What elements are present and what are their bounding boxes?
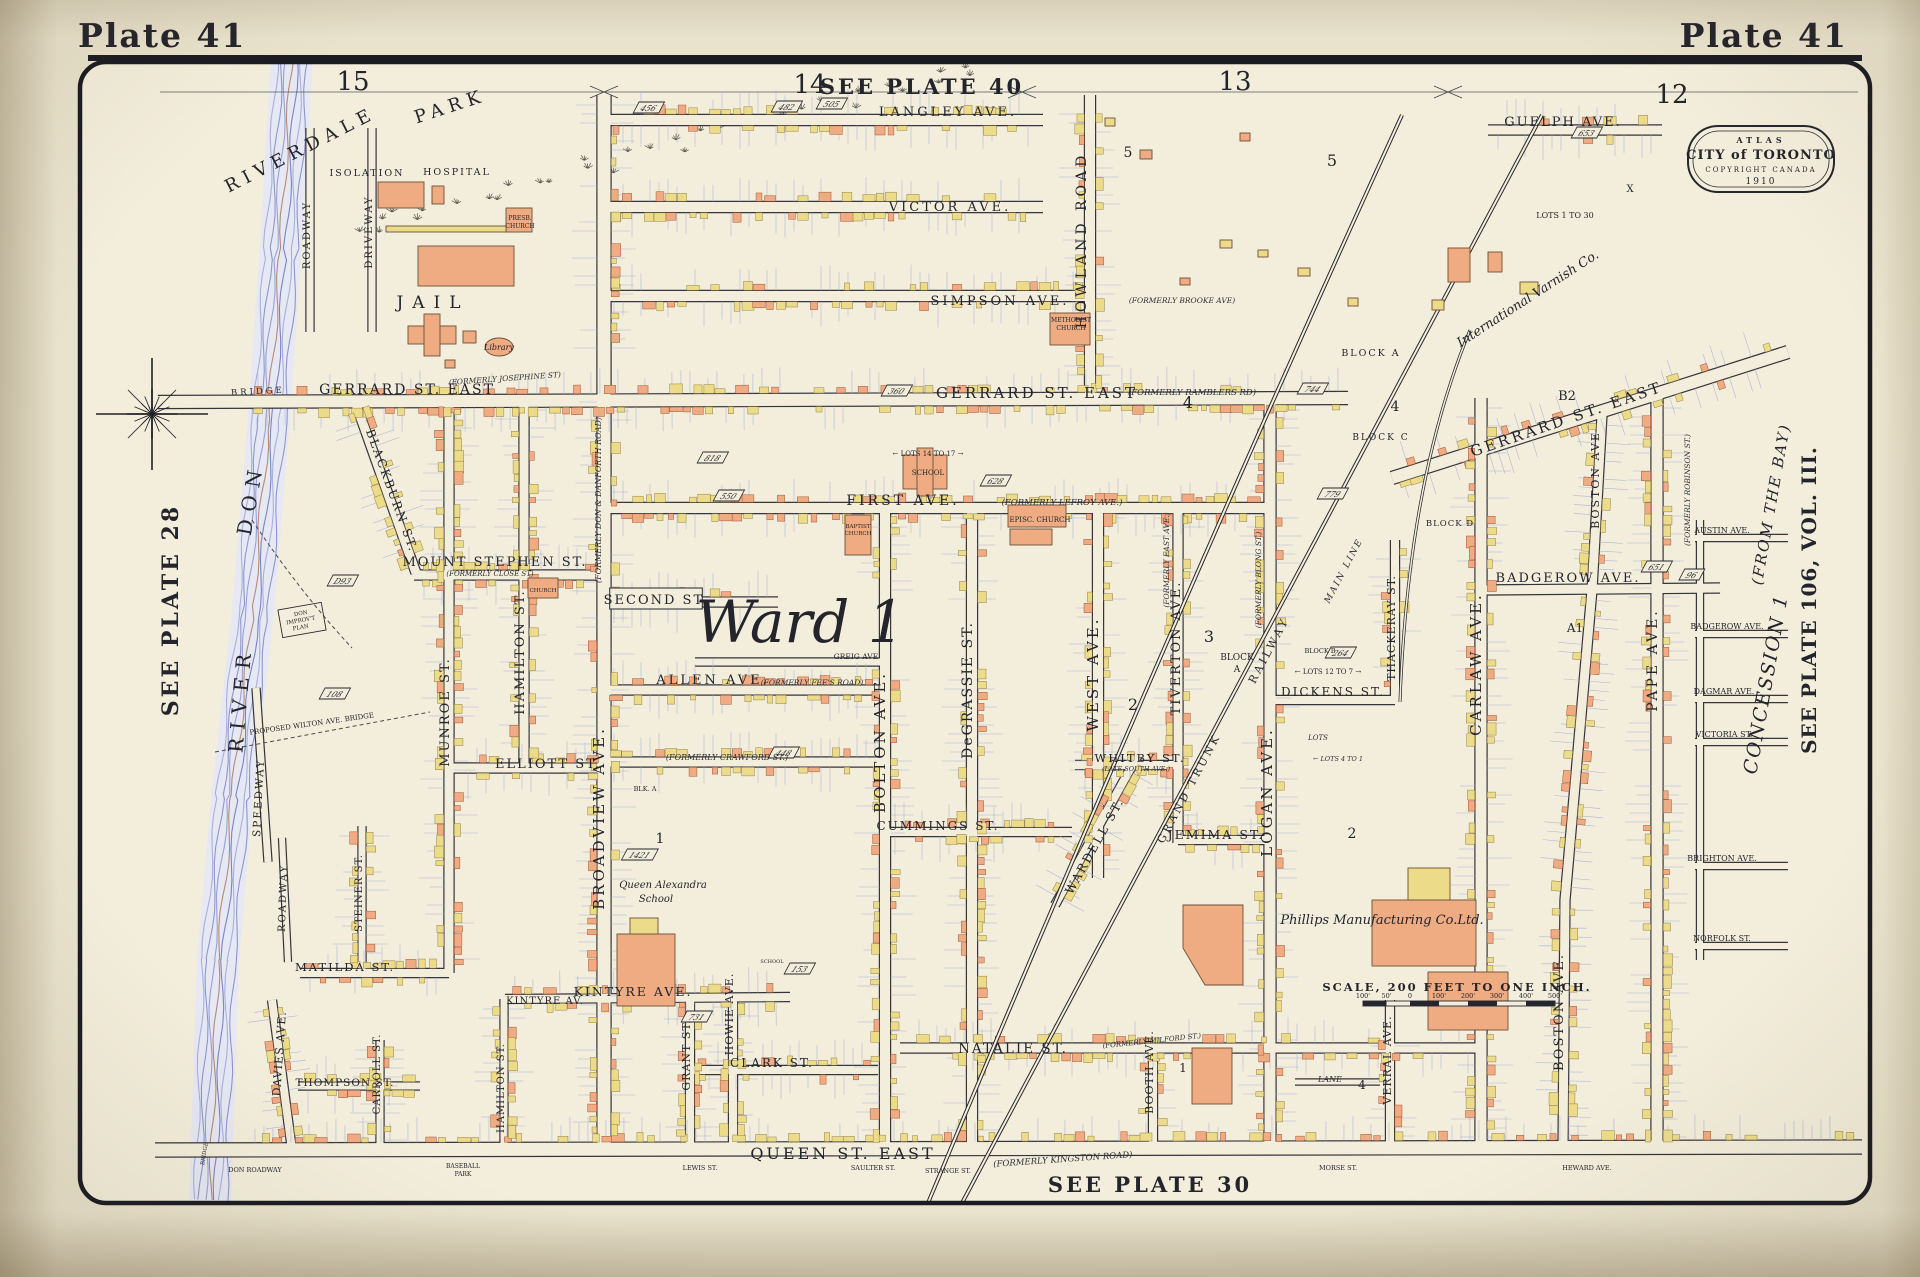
map-label-school: School bbox=[639, 894, 673, 905]
street-queen-st-east bbox=[155, 1147, 1862, 1150]
see-plate-30-label: SEE PLATE 30 bbox=[1048, 1172, 1252, 1197]
map-label-3: 3 bbox=[1204, 627, 1214, 646]
landmark-building bbox=[386, 226, 518, 232]
map-label-dagmar-ave: DAGMAR AVE. bbox=[1694, 687, 1755, 696]
map-label-13: 13 bbox=[1218, 67, 1251, 97]
scale-tick-2: 0 bbox=[1408, 992, 1412, 1000]
map-label-kintyre-av: KINTYRE AV. bbox=[506, 996, 584, 1007]
map-label-don-roadway: DON ROADWAY bbox=[228, 1166, 282, 1174]
map-label-simpson-ave: SIMPSON AVE. bbox=[931, 294, 1070, 309]
map-label-lewis-st: LEWIS ST. bbox=[683, 1164, 718, 1172]
map-label-pape-ave: PAPE AVE. bbox=[1645, 608, 1661, 712]
scale-tick-0: 100' bbox=[1356, 992, 1370, 1000]
map-label-greig-ave: GREIG AVE bbox=[834, 652, 878, 661]
landmark-building bbox=[630, 918, 658, 934]
crest-year: 1910 bbox=[1746, 177, 1777, 187]
map-label-elliott-st: ELLIOTT ST. bbox=[495, 757, 601, 772]
map-label-badgerow-ave: BADGEROW AVE. bbox=[1690, 622, 1763, 631]
map-label-block-d: BLOCK D bbox=[1426, 519, 1474, 529]
map-label-driveway: DRIVEWAY bbox=[364, 195, 375, 268]
map-label-carlaw-ave: CARLAW AVE. bbox=[1467, 592, 1485, 736]
map-label-15: 15 bbox=[336, 67, 369, 97]
map-label-ward-1: Ward 1 bbox=[695, 588, 904, 656]
map-label-kintyre-ave: KINTYRE AVE. bbox=[574, 984, 693, 999]
map-label-strange-st: STRANGE ST. bbox=[925, 1167, 971, 1175]
landmark-building bbox=[424, 314, 440, 356]
map-label-jemima-st: JEMIMA ST. bbox=[1166, 827, 1265, 842]
map-label-formerly-robinson-st: (FORMERLY ROBINSON ST.) bbox=[1683, 434, 1692, 546]
map-label-austin-ave: AUSTIN AVE. bbox=[1693, 526, 1750, 535]
landmark-building bbox=[1180, 278, 1190, 285]
map-label-4: 4 bbox=[1391, 399, 1400, 415]
landmark-building bbox=[1192, 1048, 1232, 1104]
map-label-hamilton-st: HAMILTON ST. bbox=[513, 589, 528, 714]
map-label-first-ave: FIRST AVE. bbox=[846, 493, 959, 509]
map-label-1: 1 bbox=[656, 831, 665, 847]
map-label-langley-ave: LANGLEY AVE. bbox=[879, 105, 1017, 120]
map-label-presb: PRESB. bbox=[508, 215, 531, 222]
landmark-building bbox=[432, 186, 444, 204]
atlas-plate-41-map: 45648250565336055081862874477965196448D9… bbox=[0, 0, 1920, 1277]
map-label-school: SCHOOL bbox=[912, 469, 945, 477]
map-label-formerly-lefroy-ave: (FORMERLY LEFROY AVE.) bbox=[1002, 497, 1123, 508]
map-label-formerly-blong-st: (FORMERLY BLONG ST.) bbox=[1254, 532, 1263, 629]
landmark-building bbox=[1408, 868, 1450, 900]
map-label-formerly-fee-s-road: (FORMERLY FEE'S ROAD) bbox=[761, 678, 864, 687]
map-label-verral-ave: VERRAL AVE. bbox=[1381, 1015, 1394, 1105]
map-label-b2: B2 bbox=[1558, 389, 1576, 404]
landmark-building bbox=[1140, 150, 1152, 159]
map-label-tiverton-ave: TIVERTON AVE. bbox=[1169, 581, 1184, 716]
map-label-west-ave: WEST AVE. bbox=[1084, 616, 1102, 731]
landmark-building bbox=[1220, 240, 1232, 248]
map-label-boston-ave: BOSTON AVE bbox=[1589, 431, 1602, 529]
map-label-formerly-crawford-st: (FORMERLY CRAWFORD ST.) bbox=[666, 753, 788, 762]
landmark-building bbox=[445, 360, 455, 368]
map-label-formerly-don-danforth-road: (FORMERLY DON & DANFORTH ROAD) bbox=[594, 417, 603, 583]
map-label-natalie-st: NATALIE ST. bbox=[958, 1041, 1068, 1057]
map-label-whitby-st: WHITBY ST. bbox=[1094, 751, 1185, 765]
map-label-x: X bbox=[1626, 184, 1634, 195]
map-label-brighton-ave: BRIGHTON AVE. bbox=[1687, 854, 1756, 863]
map-label-lots-4-to-1: ← LOTS 4 TO 1 bbox=[1313, 755, 1363, 763]
map-label-a1: A1 bbox=[1566, 621, 1583, 635]
map-label-gerrard-st-east: GERRARD ST. EAST bbox=[936, 384, 1138, 402]
map-label-12: 12 bbox=[1655, 80, 1688, 110]
map-label-norfolk-st: NORFOLK ST. bbox=[1693, 934, 1751, 943]
landmark-building bbox=[1105, 118, 1115, 126]
map-label-hospital: HOSPITAL bbox=[423, 167, 491, 178]
map-label-2: 2 bbox=[1348, 826, 1357, 842]
landmark-building bbox=[1010, 529, 1052, 545]
landmark-building bbox=[1258, 250, 1268, 257]
landmark-building bbox=[418, 246, 514, 286]
landmark-building bbox=[378, 182, 424, 208]
map-label-boston-ave: BOSTON AVE. bbox=[1552, 953, 1567, 1071]
map-label-carroll-st: CARROLL ST. bbox=[372, 1034, 383, 1115]
map-label-howland-road: HOWLAND ROAD bbox=[1074, 152, 1090, 329]
map-label-5: 5 bbox=[1124, 145, 1133, 161]
map-label-cummings-st: CUMMINGS ST. bbox=[876, 819, 999, 833]
map-label-guelph-ave: GUELPH AVE. bbox=[1504, 115, 1621, 130]
map-label-grant-st: GRANT ST. bbox=[680, 1019, 693, 1090]
map-label-episc-church: EPISC. CHURCH bbox=[1009, 516, 1070, 524]
map-label-4: 4 bbox=[1183, 393, 1193, 412]
scale-seg bbox=[1468, 1001, 1497, 1006]
map-label-heward-ave: HEWARD AVE. bbox=[1562, 1164, 1612, 1172]
scale-tick-4: 200' bbox=[1461, 992, 1475, 1000]
map-label-1: 1 bbox=[1179, 1061, 1187, 1075]
map-label-allen-ave: ALLEN AVE. bbox=[655, 673, 769, 688]
map-label-roadway: ROADWAY bbox=[302, 201, 313, 269]
map-label-see-plate-106-vol-iii: SEE PLATE 106, VOL. III. bbox=[1797, 446, 1821, 754]
map-label-block-c: BLOCK C bbox=[1352, 433, 1409, 443]
map-label-church: CHURCH bbox=[530, 588, 557, 594]
map-label-phillips-manufacturing-co-ltd: Phillips Manufacturing Co.Ltd. bbox=[1279, 913, 1483, 928]
scale-tick-1: 50' bbox=[1381, 992, 1391, 1000]
see-plate-40-label: SEE PLATE 40 bbox=[820, 74, 1024, 99]
map-label-victor-ave: VICTOR AVE. bbox=[888, 200, 1011, 215]
map-label-saulter-st: SAULTER ST. bbox=[851, 1164, 895, 1172]
map-label-steiner-st: STEINER ST. bbox=[354, 854, 365, 932]
plate-title-right: Plate 41 bbox=[1680, 16, 1848, 55]
scale-tick-7: 500' bbox=[1548, 992, 1562, 1000]
crest-city: CITY of TORONTO bbox=[1686, 148, 1836, 163]
plate-title-left: Plate 41 bbox=[78, 16, 246, 55]
landmark-building bbox=[1488, 252, 1502, 272]
map-label-broadview-ave: BROADVIEW AVE. bbox=[590, 726, 608, 910]
street-badgerow-ave bbox=[1481, 588, 1720, 590]
map-label-5: 5 bbox=[1327, 151, 1337, 170]
scale-seg bbox=[1526, 1001, 1555, 1006]
map-label-formerly-brooke-ave: (FORMERLY BROOKE AVE) bbox=[1129, 296, 1235, 305]
map-label-queen-alexandra: Queen Alexandra bbox=[619, 880, 707, 891]
map-label-a: A bbox=[1233, 665, 1241, 675]
map-label-church: CHURCH bbox=[505, 223, 534, 230]
map-label-lots-12-to-7: ← LOTS 12 TO 7 → bbox=[1295, 668, 1362, 676]
map-label-formerly-close-st: (FORMERLY CLOSE ST) bbox=[446, 570, 534, 578]
map-label-munroe-st: MUNROE ST. bbox=[438, 657, 453, 767]
map-label-hamilton-st: HAMILTON ST. bbox=[496, 1043, 507, 1133]
map-label-degrassie-st: DeGRASSIE ST. bbox=[960, 621, 976, 759]
map-label-lots-1-to-30: LOTS 1 TO 30 bbox=[1536, 211, 1593, 220]
map-label-park: PARK bbox=[455, 1171, 472, 1178]
scale-tick-5: 300' bbox=[1490, 992, 1504, 1000]
map-label-school: SCHOOL bbox=[760, 959, 784, 965]
map-label-late-south-ave: (LATE SOUTH AVE.) bbox=[1102, 765, 1171, 773]
map-label-see-plate-28: SEE PLATE 28 bbox=[158, 504, 184, 716]
plan-number-1421: 1421 bbox=[621, 849, 658, 861]
map-label-mount-stephen-st: MOUNT STEPHEN ST. bbox=[402, 555, 587, 570]
scale-seg bbox=[1410, 1001, 1439, 1006]
map-label-lots-14-to-17: ← LOTS 14 TO 17 → bbox=[893, 450, 964, 458]
landmark-building bbox=[1298, 268, 1310, 276]
map-label-morse-st: MORSE ST. bbox=[1319, 1164, 1357, 1172]
map-label-block-b: BLOCK B bbox=[1304, 647, 1335, 655]
map-label-victoria-st: VICTORIA ST. bbox=[1695, 730, 1753, 739]
landmark-building bbox=[1448, 248, 1470, 282]
map-label-2: 2 bbox=[1128, 695, 1138, 714]
atlas-crest: ATLAS CITY of TORONTO COPYRIGHT CANADA 1… bbox=[1686, 126, 1836, 192]
map-label-blk-a: BLK. A bbox=[634, 785, 657, 793]
landmark-building bbox=[1348, 298, 1358, 306]
map-label-baseball: BASEBALL bbox=[446, 1163, 480, 1170]
map-label-dickens-st: DICKENS ST. bbox=[1281, 685, 1385, 699]
map-label-block: BLOCK bbox=[1220, 653, 1254, 663]
landmark-building bbox=[1240, 133, 1250, 141]
map-label-howie-ave: HOWIE AVE. bbox=[723, 973, 736, 1056]
map-label-church: CHURCH bbox=[845, 531, 872, 537]
map-label-lots: LOTS bbox=[1307, 734, 1328, 742]
scale-tick-6: 400' bbox=[1519, 992, 1533, 1000]
scale-tick-3: 100' bbox=[1432, 992, 1446, 1000]
map-label-bolton-ave: BOLTON AVE. bbox=[871, 671, 889, 813]
landmark-building bbox=[463, 331, 476, 343]
crest-copyright: COPYRIGHT CANADA bbox=[1705, 166, 1816, 174]
crest-atlas: ATLAS bbox=[1735, 135, 1785, 145]
landmark-building bbox=[1372, 900, 1476, 966]
atlas-page: 45648250565336055081862874477965196448D9… bbox=[0, 0, 1920, 1277]
map-label-badgerow-ave: BADGEROW AVE. bbox=[1496, 571, 1641, 586]
scale-seg bbox=[1363, 1001, 1387, 1006]
map-label-formerly-east-ave: (FORMERLY EAST AVE.) bbox=[1162, 512, 1171, 607]
street-gerrard-st-east bbox=[158, 398, 1348, 402]
map-label-thackeray-st: THACKERAY ST. bbox=[1385, 575, 1398, 681]
map-label-block-a: BLOCK A bbox=[1341, 348, 1400, 359]
scale-bar: SCALE, 200 FEET TO ONE INCH. 100'50'0100… bbox=[1322, 980, 1591, 1006]
map-label-second-st: SECOND ST. bbox=[604, 593, 709, 608]
map-label-booth-ave: BOOTH AVE. bbox=[1143, 1030, 1156, 1114]
map-label-4: 4 bbox=[1358, 1078, 1366, 1092]
landmark-building bbox=[1432, 300, 1444, 310]
map-label-isolation: ISOLATION bbox=[330, 168, 405, 179]
map-label-clark-st: CLARK ST. bbox=[730, 1056, 814, 1070]
map-label-jail: JAIL bbox=[394, 293, 469, 313]
map-label-lane: LANE bbox=[1317, 1075, 1342, 1084]
map-label-queen-st-east: QUEEN ST. EAST bbox=[750, 1144, 935, 1163]
map-label-matilda-st: MATILDA ST. bbox=[295, 960, 395, 974]
map-label-baptist: BAPTIST bbox=[846, 524, 871, 530]
map-label-library: Library bbox=[483, 343, 514, 352]
